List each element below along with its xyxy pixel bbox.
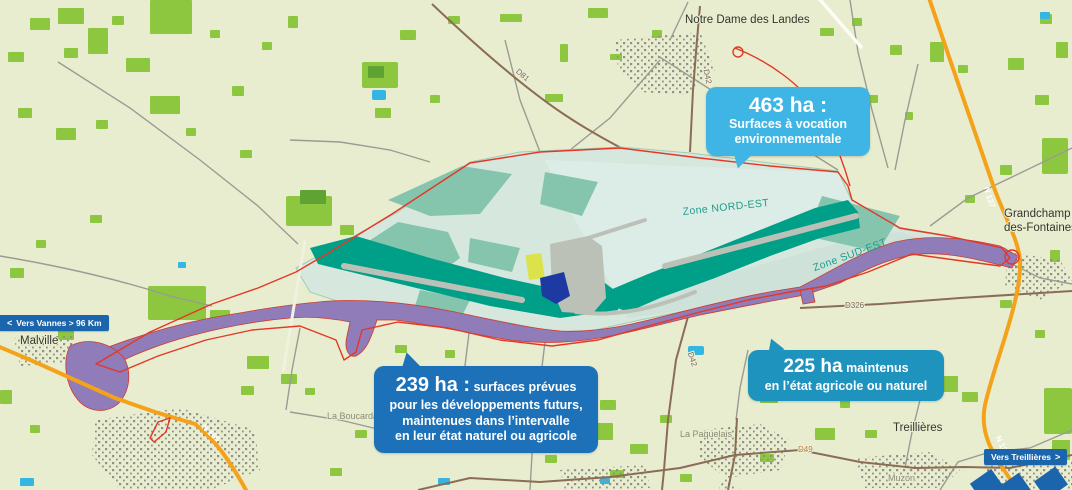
label-hamlet-la-paquelais: La Paquelais xyxy=(680,429,733,439)
label-road-d326: D326 xyxy=(845,301,865,310)
callout-225-line2: en l’état agricole ou naturel xyxy=(752,379,940,394)
callout-239-line4: en leur état naturel ou agricole xyxy=(379,429,593,445)
sign-vers-vannes: < Vers Vannes > 96 Km xyxy=(0,315,109,331)
label-town-grandchamp-line2: des-Fontaines xyxy=(1004,222,1072,234)
sign-vers-vannes-label: Vers Vannes > 96 Km xyxy=(16,318,101,328)
callout-463-environmental: 463 ha : Surfaces à vocation environneme… xyxy=(706,87,870,156)
callout-463-line2: environnementale xyxy=(712,132,864,147)
callout-463-pointer xyxy=(731,152,752,171)
callout-239-line2: pour les développements futurs, xyxy=(379,398,593,414)
label-hamlet-muzon: Muzon xyxy=(888,473,915,483)
label-town-treillieres: Treillières xyxy=(893,422,943,434)
callout-239-line3: maintenues dans l’intervalle xyxy=(379,414,593,430)
callout-225-value: 225 ha xyxy=(783,356,842,377)
callout-225-pointer xyxy=(764,336,784,354)
callout-225-suffix: maintenus xyxy=(846,361,909,375)
sign-vers-treillieres-label: Vers Treillières xyxy=(991,452,1051,462)
label-road-d49: D49 xyxy=(798,445,813,454)
callout-463-line1: Surfaces à vocation xyxy=(712,117,864,132)
callout-225-maintained: 225 ha maintenus en l’état agricole ou n… xyxy=(748,350,944,401)
callout-239-suffix: surfaces prévues xyxy=(474,380,577,394)
callout-239-pointer xyxy=(399,350,420,369)
map-canvas: Notre Dame des Landes Malville Grandcham… xyxy=(0,0,1072,490)
label-town-grandchamp-line1: Grandchamp xyxy=(1004,208,1070,220)
sign-vers-treillieres: Vers Treillières > xyxy=(984,449,1067,465)
label-town-malville: Malville xyxy=(20,335,58,347)
callout-239-future: 239 ha : surfaces prévues pour les dével… xyxy=(374,366,598,453)
callout-463-value: 463 ha : xyxy=(712,95,864,117)
chevron-left-icon: < xyxy=(7,318,12,328)
chevron-right-icon: > xyxy=(1055,452,1060,462)
callout-239-value: 239 ha : xyxy=(396,374,470,396)
label-town-notre-dame: Notre Dame des Landes xyxy=(685,14,810,26)
